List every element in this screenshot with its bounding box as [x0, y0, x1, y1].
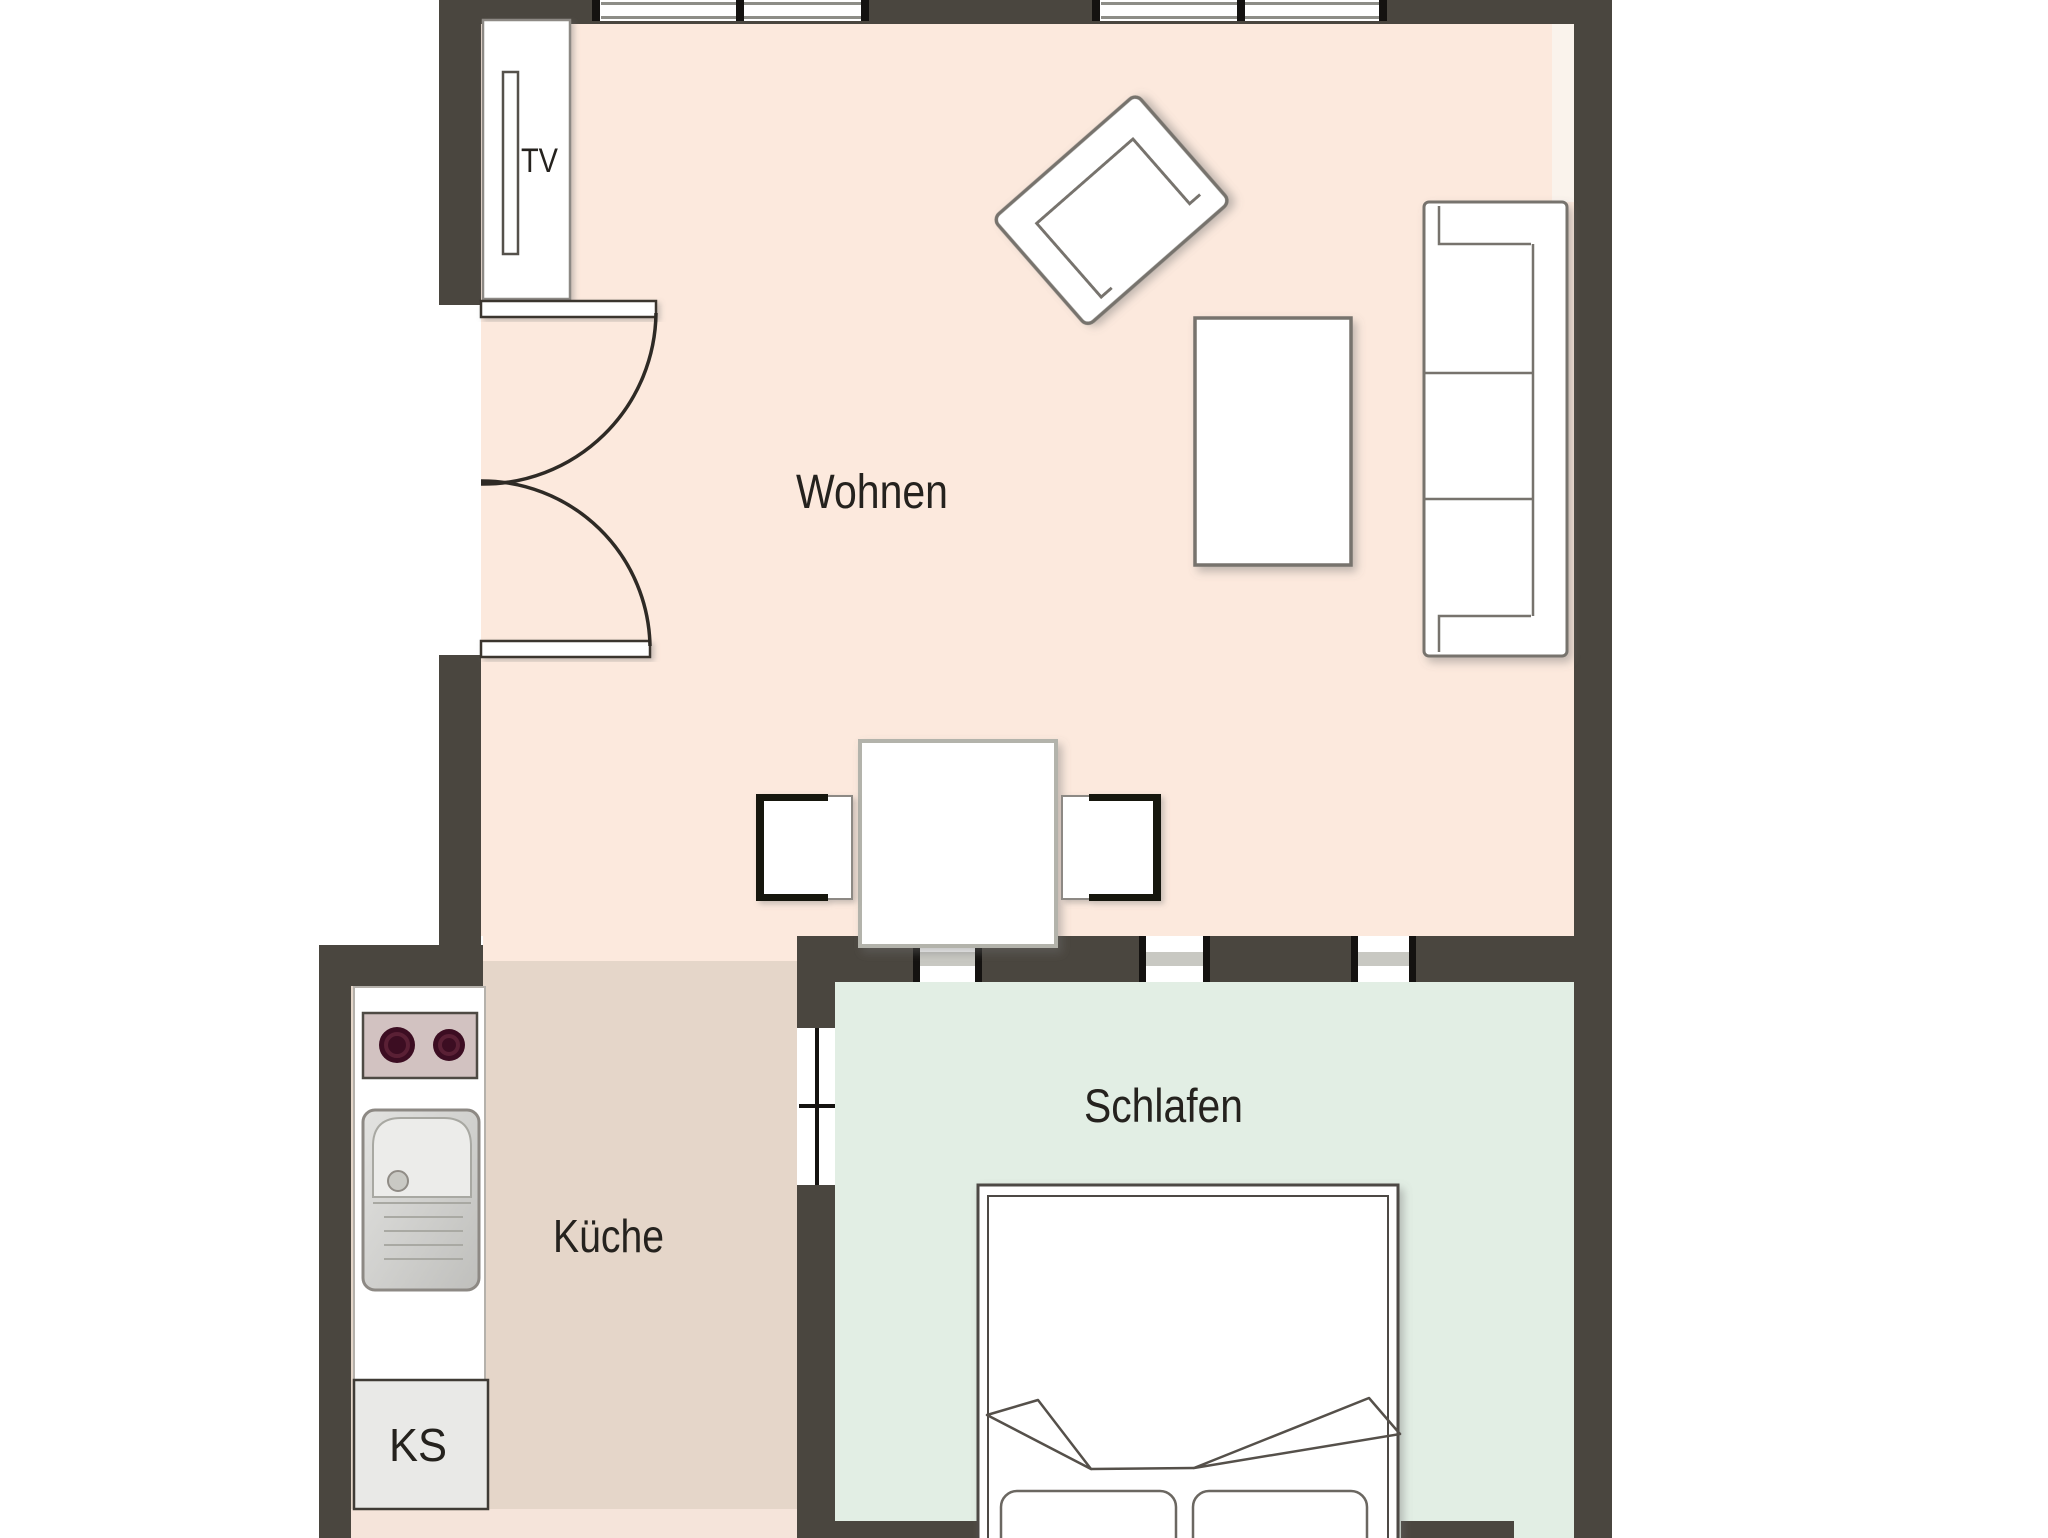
svg-text:Schlafen: Schlafen	[1084, 1079, 1243, 1132]
svg-text:Wohnen: Wohnen	[796, 466, 948, 519]
svg-text:KS: KS	[389, 1419, 447, 1471]
svg-text:TV: TV	[521, 142, 558, 180]
svg-text:Küche: Küche	[553, 1210, 664, 1262]
